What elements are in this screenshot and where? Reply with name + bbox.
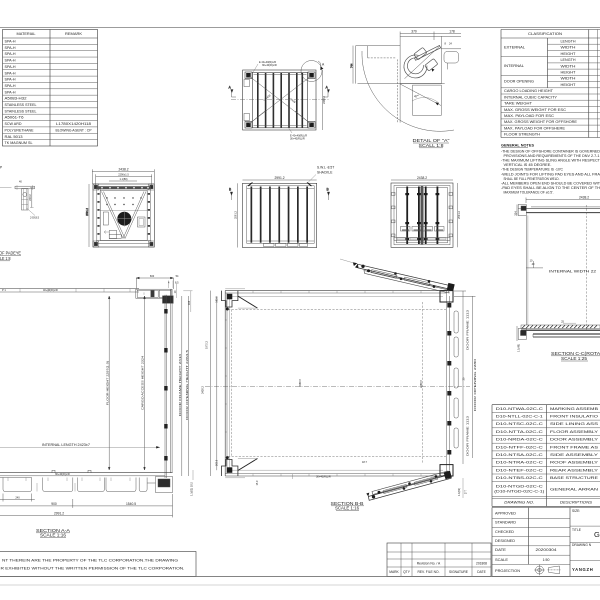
- svg-text:SPA-H: SPA-H: [5, 52, 17, 56]
- svg-text:2991.2: 2991.2: [54, 511, 64, 515]
- svg-text:DETAIL OF PADEYE: DETAIL OF PADEYE: [0, 251, 21, 256]
- svg-text:PROJECTION: PROJECTION: [495, 569, 521, 573]
- svg-text:SPA-H: SPA-H: [5, 46, 17, 50]
- svg-text:INTERNAL: INTERNAL: [504, 64, 524, 68]
- svg-text:SCALL 1:8: SCALL 1:8: [419, 143, 445, 148]
- svg-text:SPA-H: SPA-H: [5, 40, 17, 44]
- svg-text:DATE: DATE: [495, 548, 507, 552]
- svg-text:DOOR OPENING HEIGHT 2264.5: DOOR OPENING HEIGHT 2264.5: [185, 349, 189, 420]
- svg-text:P 1: P 1: [2, 288, 6, 292]
- svg-text:DOOR FRAME HEIGHT 2313: DOOR FRAME HEIGHT 2313: [178, 353, 182, 416]
- svg-text:D10-NTWA-02C-C: D10-NTWA-02C-C: [496, 407, 544, 411]
- svg-text:2286.5: 2286.5: [419, 380, 423, 388]
- svg-text:D10-NTRA-02C-C: D10-NTRA-02C-C: [496, 461, 544, 465]
- svg-text:2438.2: 2438.2: [417, 176, 427, 180]
- svg-text:CLASSIFICATION: CLASSIFICATION: [528, 32, 563, 36]
- svg-text:APPROVED: APPROVED: [495, 511, 517, 515]
- svg-text:30+40(R)L/R: 30+40(R)L/R: [316, 474, 331, 478]
- svg-text:2438.2: 2438.2: [579, 196, 589, 200]
- svg-text:DESCRIPTIONS: DESCRIPTIONS: [560, 501, 593, 505]
- svg-text:1540.5: 1540.5: [126, 502, 136, 506]
- svg-text:BLOWING AGENT : CP: BLOWING AGENT : CP: [56, 128, 93, 132]
- svg-text:SCALE 1:25: SCALE 1:25: [561, 356, 588, 361]
- svg-text:SHALL BE FULL PENETRATION WELD: SHALL BE FULL PENETRATION WELD.: [504, 177, 560, 181]
- svg-text:FLOOR HEIGHT 2297(1.0): FLOOR HEIGHT 2297(1.0): [105, 361, 109, 405]
- svg-text:-THE DESIGN TEMPERATURE IS -10: -THE DESIGN TEMPERATURE IS -10'C: [501, 168, 564, 172]
- svg-text:QTY: QTY: [403, 570, 411, 574]
- svg-text:-THE MAXIMUM LIFTING SLING ANG: -THE MAXIMUM LIFTING SLING ANGLE WITH RE…: [501, 159, 600, 163]
- svg-text:D10-NTSA-02C-C: D10-NTSA-02C-C: [496, 453, 544, 457]
- svg-text:MAX. PAYLOAD FOR OFFSHERE: MAX. PAYLOAD FOR OFFSHERE: [504, 126, 566, 130]
- svg-text:203.2: 203.2: [28, 194, 32, 201]
- svg-text:NT THEREIN ARE THE PROPERTY OF: NT THEREIN ARE THE PROPERTY OF THE TLC C…: [2, 559, 179, 563]
- svg-text:S.W.L -8.5T: S.W.L -8.5T: [317, 166, 334, 170]
- svg-text:30+40(R)L/R: 30+40(R)L/R: [262, 63, 277, 67]
- svg-text:1.1(80): 1.1(80): [119, 177, 127, 181]
- svg-text:SPA-H: SPA-H: [5, 90, 17, 94]
- svg-text:BASE STRUCTURE: BASE STRUCTURE: [550, 476, 599, 480]
- svg-text:18.7: 18.7: [362, 460, 368, 464]
- svg-text:MARKING ASSEMB: MARKING ASSEMB: [550, 407, 599, 411]
- svg-text:TK MAGNUM SL: TK MAGNUM SL: [5, 141, 33, 145]
- svg-text:2438.2: 2438.2: [322, 96, 326, 104]
- svg-text:FRONT INSULATIO: FRONT INSULATIO: [550, 415, 599, 419]
- svg-text:FLOOR ASSEMBLY: FLOOR ASSEMBLY: [550, 430, 599, 434]
- svg-text:1:50: 1:50: [543, 558, 550, 562]
- svg-text:SCALE: SCALE: [495, 558, 509, 562]
- svg-text:CHECKED: CHECKED: [495, 530, 515, 534]
- svg-text:600: 600: [150, 274, 155, 278]
- svg-text:240: 240: [15, 496, 20, 500]
- svg-text:-ALL MEMBERS OPEN END SHOULD B: -ALL MEMBERS OPEN END SHOULD BE COVERED …: [501, 182, 600, 186]
- svg-text:2591.2: 2591.2: [234, 211, 238, 219]
- svg-text:SPA-H: SPA-H: [5, 84, 17, 88]
- svg-text:FRONT FRAME AS: FRONT FRAME AS: [550, 445, 599, 449]
- svg-text:STAINLESS STEEL: STAINLESS STEEL: [5, 103, 37, 107]
- svg-text:370: 370: [411, 29, 417, 33]
- svg-text:MAXIMUM TOLERANCE OF ±0.5'.: MAXIMUM TOLERANCE OF ±0.5'.: [504, 191, 554, 195]
- svg-text:SCALE 1:16: SCALE 1:16: [40, 533, 67, 538]
- svg-text:SIDE ASSEMBLY: SIDE ASSEMBLY: [550, 453, 599, 457]
- svg-text:EXTERNAL: EXTERNAL: [504, 46, 525, 50]
- svg-text:HEIGHT: HEIGHT: [561, 71, 576, 75]
- svg-text:CARGO ACCESS HEIGHT 2324: CARGO ACCESS HEIGHT 2324: [141, 355, 145, 410]
- svg-text:D10-NTSC-02C-C: D10-NTSC-02C-C: [496, 422, 544, 426]
- svg-text:1.1(62) 18.5: 1.1(62) 18.5: [189, 482, 193, 496]
- svg-text:SIDE LINING ASS: SIDE LINING ASS: [550, 422, 599, 426]
- svg-text:WIDTH: WIDTH: [561, 77, 577, 81]
- svg-text:ROOF ASSEMBLY: ROOF ASSEMBLY: [550, 461, 599, 465]
- svg-text:D10-NTBS-02C-C: D10-NTBS-02C-C: [496, 476, 544, 480]
- svg-text:MAX. PAYLOAD FOR ESC: MAX. PAYLOAD FOR ESC: [504, 114, 555, 118]
- svg-text:2438.2: 2438.2: [201, 386, 205, 394]
- svg-text:2591.2: 2591.2: [457, 211, 461, 219]
- svg-text:MATERIAL: MATERIAL: [17, 32, 36, 36]
- svg-text:R EXHIBITED WITHOUT THE WRITTE: R EXHIBITED WITHOUT THE WRITTEN PERMISSI…: [1, 567, 185, 571]
- svg-text:377: 377: [464, 489, 468, 494]
- svg-text:STANDARD: STANDARD: [495, 521, 517, 525]
- svg-text:SHACKLE: SHACKLE: [317, 171, 333, 175]
- svg-text:YANGZH: YANGZH: [572, 567, 594, 572]
- svg-text:D10-NRDA-02C-C: D10-NRDA-02C-C: [496, 438, 544, 442]
- svg-text:30+40(R)L/R: 30+40(R)L/R: [290, 137, 305, 141]
- svg-text:DRAWING N: DRAWING N: [572, 543, 592, 547]
- svg-text:900: 900: [51, 502, 57, 506]
- svg-text:2991.2: 2991.2: [274, 176, 284, 180]
- svg-text:INTERNAL WIDTH 22: INTERNAL WIDTH 22: [549, 270, 596, 274]
- svg-text:G: G: [594, 530, 600, 539]
- svg-text:178: 178: [449, 29, 455, 33]
- svg-text:1.1(48): 1.1(48): [517, 344, 521, 352]
- svg-text:INTERNAL CUBIC CAPACITY: INTERNAL CUBIC CAPACITY: [504, 95, 558, 99]
- svg-text:LENGTH: LENGTH: [561, 58, 577, 62]
- svg-text:DATE: DATE: [477, 570, 486, 574]
- svg-text:DESIGNED: DESIGNED: [495, 539, 516, 543]
- svg-text:162.5: 162.5: [214, 459, 218, 466]
- svg-text:REV. FILE NO.: REV. FILE NO.: [417, 570, 439, 574]
- svg-text:(D10-NTGD-02C-C-1): (D10-NTGD-02C-C-1): [494, 490, 544, 494]
- svg-text:SPA-H: SPA-H: [5, 59, 17, 63]
- svg-text:744: 744: [349, 63, 353, 68]
- svg-text:D10-NTGD-02C-C: D10-NTGD-02C-C: [496, 485, 544, 489]
- svg-text:DOOR FRAME 1113: DOOR FRAME 1113: [466, 309, 470, 350]
- svg-text:30+40(R)L/R: 30+40(R)L/R: [55, 472, 70, 476]
- svg-text:Revision No. / A: Revision No. / A: [417, 561, 441, 565]
- svg-text:A5061-T6: A5061-T6: [5, 116, 24, 120]
- svg-text:254: 254: [514, 211, 518, 216]
- svg-text:SIZE:: SIZE:: [572, 509, 580, 513]
- svg-text:REMARK: REMARK: [65, 32, 83, 36]
- svg-text:SCW ARD: SCW ARD: [5, 122, 23, 126]
- svg-text:TITLE: TITLE: [572, 528, 582, 532]
- svg-text:A5083-H32: A5083-H32: [5, 97, 27, 101]
- svg-text:D10-NTFF-02C-C: D10-NTFF-02C-C: [496, 445, 544, 449]
- svg-text:LENGTH: LENGTH: [561, 39, 577, 43]
- svg-text:RAL 5013: RAL 5013: [5, 135, 23, 139]
- svg-text:WIDTH: WIDTH: [561, 64, 577, 68]
- svg-text:201808: 201808: [476, 561, 487, 565]
- svg-text:8.5: 8.5: [175, 280, 179, 284]
- svg-text:SCALE 1:8: SCALE 1:8: [0, 256, 11, 261]
- svg-text:MAX. GROSS WEIGHT FOR OFFSHORE: MAX. GROSS WEIGHT FOR OFFSHORE: [504, 120, 578, 124]
- svg-text:HEIGHT: HEIGHT: [561, 83, 576, 87]
- svg-text:CARGO LOADING HEIGHT: CARGO LOADING HEIGHT: [504, 89, 553, 93]
- svg-text:D10-NTEF-02C-C: D10-NTEF-02C-C: [496, 468, 544, 472]
- svg-text:SPA-H: SPA-H: [5, 65, 17, 69]
- svg-text:40+40(R)L/R: 40+40(R)L/R: [43, 288, 58, 292]
- svg-text:2438.2: 2438.2: [118, 167, 128, 171]
- svg-text:MAX. GROSS WEIGHT FOR ESC: MAX. GROSS WEIGHT FOR ESC: [504, 108, 567, 112]
- svg-text:15.9: 15.9: [255, 480, 259, 486]
- svg-text:D10-NTLL-02C-C-1: D10-NTLL-02C-C-1: [496, 415, 543, 419]
- svg-text:HEIGHT: HEIGHT: [561, 52, 576, 56]
- svg-text:2-D63.5: 2-D63.5: [30, 216, 40, 220]
- svg-text:WIDTH: WIDTH: [561, 46, 577, 50]
- svg-text:-THE DESIGN OF OFFSHORE CONTAI: -THE DESIGN OF OFFSHORE CONTAINER IS GOV…: [501, 149, 600, 153]
- svg-text:FLOOR STRENGTH: FLOOR STRENGTH: [504, 133, 541, 137]
- svg-text:SPA-H: SPA-H: [5, 71, 17, 75]
- svg-text:-WELD JOINTS FOR LIFTING PAD E: -WELD JOINTS FOR LIFTING PAD EYES AND AL…: [501, 172, 600, 176]
- svg-text:POLYURETHANE: POLYURETHANE: [5, 128, 35, 132]
- svg-text:DOOR OPENING 2280: DOOR OPENING 2280: [473, 358, 477, 411]
- svg-text:-PAD EYES SHALL BE ALIGN TO TH: -PAD EYES SHALL BE ALIGN TO THE CENTER O…: [501, 186, 600, 190]
- svg-text:DOOR ASSEMBLY: DOOR ASSEMBLY: [550, 438, 599, 442]
- svg-text:20200304: 20200304: [536, 548, 557, 552]
- svg-text:SIGNATURE: SIGNATURE: [449, 570, 469, 574]
- svg-text:DRAWING NO.: DRAWING NO.: [504, 501, 534, 505]
- svg-text:2290±1.5: 2290±1.5: [118, 173, 129, 177]
- svg-text:DOOR OPENING: DOOR OPENING: [504, 80, 534, 84]
- svg-text:GENERAL NOTES: GENERAL NOTES: [501, 144, 535, 148]
- svg-text:REAR ASSEMBLY: REAR ASSEMBLY: [550, 468, 599, 472]
- svg-text:2286.5: 2286.5: [298, 379, 302, 387]
- svg-text:TARE WEIGHT: TARE WEIGHT: [504, 102, 532, 106]
- svg-text:PROVISIONS AND REQUIREMENTS OF: PROVISIONS AND REQUIREMENTS OF THE DNV 2…: [504, 154, 600, 158]
- svg-text:1975.2: 1975.2: [204, 341, 208, 349]
- svg-text:SCALE 1:16: SCALE 1:16: [335, 506, 360, 511]
- svg-text:INTERNAL LENGTH 2423±7: INTERNAL LENGTH 2423±7: [42, 443, 90, 447]
- svg-text:MARK: MARK: [389, 570, 399, 574]
- svg-text:D10-NTTA-02C-C: D10-NTTA-02C-C: [496, 430, 544, 434]
- svg-text:1.1(62): 1.1(62): [457, 488, 461, 496]
- svg-text:162.5: 162.5: [214, 296, 218, 303]
- svg-text:L1780X1420H118: L1780X1420H118: [56, 122, 91, 126]
- svg-text:GENERAL ARRAN: GENERAL ARRAN: [550, 488, 599, 492]
- svg-text:2591.2: 2591.2: [85, 208, 89, 216]
- svg-text:VERTICAL IS 45 DEGREE.: VERTICAL IS 45 DEGREE.: [504, 163, 552, 167]
- svg-text:SPA-H: SPA-H: [5, 78, 17, 82]
- svg-text:DOOR FRAME 1113: DOOR FRAME 1113: [466, 415, 470, 456]
- svg-text:47°: 47°: [414, 95, 420, 99]
- svg-text:STAINLESS STEEL: STAINLESS STEEL: [5, 109, 37, 113]
